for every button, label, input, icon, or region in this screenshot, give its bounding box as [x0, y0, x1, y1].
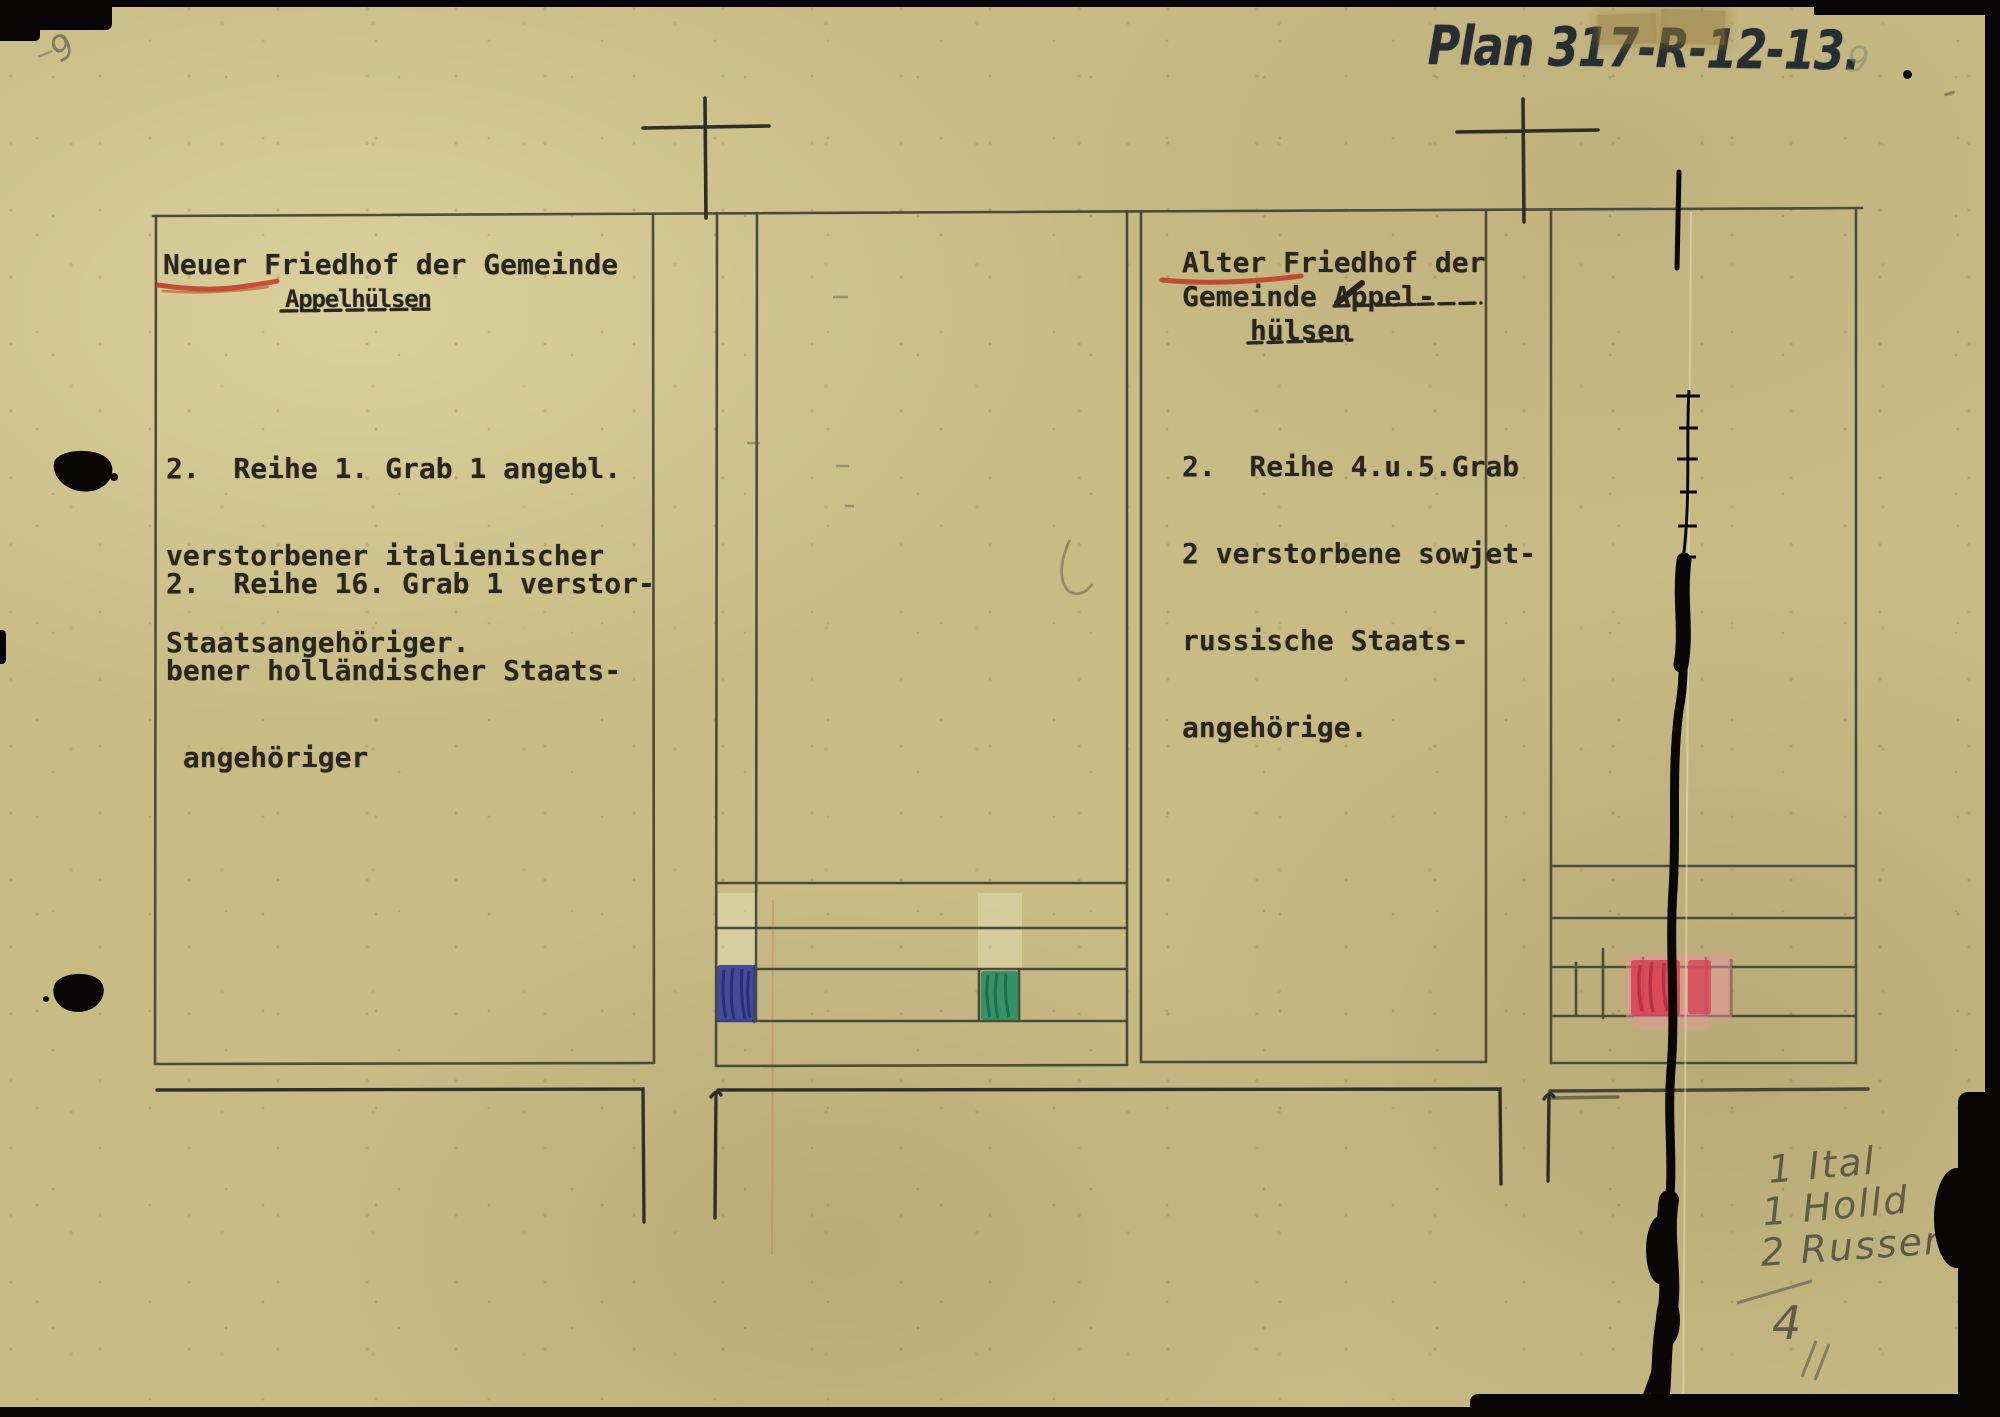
- dash-before-nine: [38, 51, 52, 57]
- cross-icon: [643, 98, 769, 218]
- text-line: bener holländischer Staats-: [166, 656, 655, 685]
- new-cemetery-plot-box: [716, 211, 1127, 1066]
- old-cemetery-title-word: Alter: [1182, 246, 1266, 279]
- new-cemetery-paragraph-2: 2. Reihe 16. Grab 1 verstor- bener hollä…: [166, 511, 655, 830]
- erased-bands: [718, 893, 1022, 971]
- text-line: 2. Reihe 4.u.5.Grab: [1182, 452, 1536, 481]
- cross-icon: [1457, 99, 1598, 222]
- red-crease-line: [772, 900, 773, 1255]
- top-boundary-line: [153, 208, 1862, 216]
- new-cemetery-title-word: Neuer: [163, 248, 247, 281]
- scan-border-top-left: [0, 0, 112, 30]
- pencil-tally: 1 Ital 1 Holld 2 Russen: [1732, 1137, 1951, 1274]
- scanned-cemetery-plan-page: Neuer Friedhof der Gemeinde Appelhülsen …: [0, 0, 2000, 1417]
- pencil-dashes: [747, 297, 854, 506]
- old-cemetery-plot-box: [1551, 210, 1856, 1063]
- tape-remnant: [1597, 13, 1656, 45]
- scan-border-top-right: [1814, 0, 2000, 15]
- tally-total: 4: [1772, 1296, 1801, 1350]
- grave-color-markers: [717, 953, 1732, 1030]
- ink-blot-left-lower: [53, 974, 103, 1012]
- russian-grave-marker: [1688, 960, 1711, 1014]
- scan-border-blob: [1934, 1168, 1979, 1268]
- text-line: angehöriger: [166, 743, 655, 772]
- ink-dot: [1903, 70, 1912, 79]
- new-cemetery-title-line2: Appelhülsen: [285, 286, 431, 312]
- street-lines: [157, 1089, 1868, 1222]
- scan-border-top: [0, 0, 2000, 7]
- new-cemetery-title-line1: Neuer Friedhof der Gemeinde: [163, 250, 618, 279]
- text-line: Gemeinde: [1182, 280, 1334, 313]
- new-cemetery-grave-rows: [717, 883, 1126, 1022]
- old-cemetery-title-line2: Gemeinde Appel-: [1182, 282, 1435, 311]
- ink-streak-top: [1677, 172, 1679, 268]
- tally-double-slash: [1802, 1341, 1829, 1380]
- text-line: russische Staats-: [1182, 626, 1536, 655]
- scan-border-bottom-right: [1470, 1394, 2000, 1417]
- new-cemetery-title-rest: Friedhof der Gemeinde: [247, 248, 618, 281]
- grave-cross-icons: [643, 98, 1598, 222]
- text-line: 2 verstorbene sowjet-: [1182, 539, 1536, 568]
- scan-border-top-left: [0, 28, 40, 41]
- text-line: angehörige.: [1182, 713, 1536, 742]
- ink-blot-left-upper: [54, 451, 113, 492]
- text-line: Appel-: [1334, 280, 1435, 313]
- old-cemetery-title-line1: Alter Friedhof der: [1182, 248, 1485, 277]
- text-line: 2. Reihe 16. Grab 1 verstor-: [166, 569, 655, 598]
- old-cemetery-title-rest: Friedhof der: [1266, 246, 1485, 279]
- old-cemetery-title-line3: hülsen: [1250, 316, 1351, 345]
- text-line: 2. Reihe 1. Grab 1 angebl.: [166, 454, 621, 483]
- old-cemetery-paragraph: 2. Reihe 4.u.5.Grab 2 verstorbene sowjet…: [1182, 394, 1536, 800]
- tape-remnant: [1660, 9, 1725, 45]
- pencil-scribble: [1062, 540, 1092, 594]
- scan-border-left-nub: [0, 630, 6, 664]
